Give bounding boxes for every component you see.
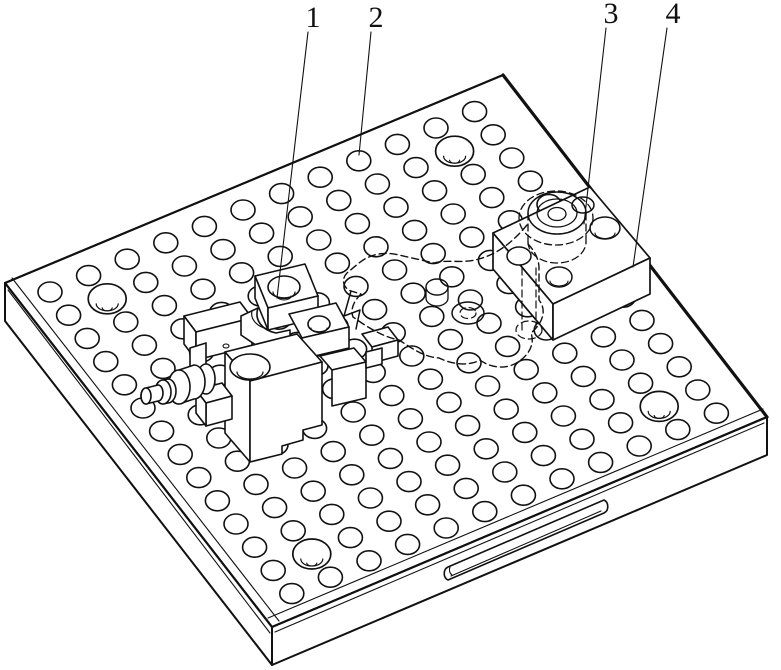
riser-hole-2 — [546, 267, 572, 287]
plate-counterbore-hole — [293, 539, 331, 569]
clamp-main-hole — [230, 354, 270, 380]
screw-shaft-end — [141, 388, 151, 404]
baseplate-layer — [5, 75, 767, 665]
riser-hole-3 — [590, 217, 620, 239]
clamp-step-front — [332, 362, 366, 406]
callout-label-3: 3 — [604, 0, 619, 30]
callout-label-2: 2 — [369, 1, 384, 34]
technical-diagram-canvas: 1234 — [0, 0, 781, 670]
fixture-assembly-figure: 1234 — [0, 0, 781, 670]
clamp-jaw-foot — [366, 348, 382, 368]
callout-label-1: 1 — [306, 1, 321, 34]
clamp-set-screw — [223, 344, 229, 348]
riser-hole-1 — [507, 247, 531, 265]
plate-counterbore-hole — [88, 284, 126, 314]
callout-leader-4 — [633, 28, 667, 267]
clamp-boss-a-hole — [268, 276, 300, 298]
callout-label-4: 4 — [666, 0, 681, 30]
plate-counterbore-hole — [640, 391, 678, 421]
plate-counterbore-hole — [436, 136, 474, 166]
